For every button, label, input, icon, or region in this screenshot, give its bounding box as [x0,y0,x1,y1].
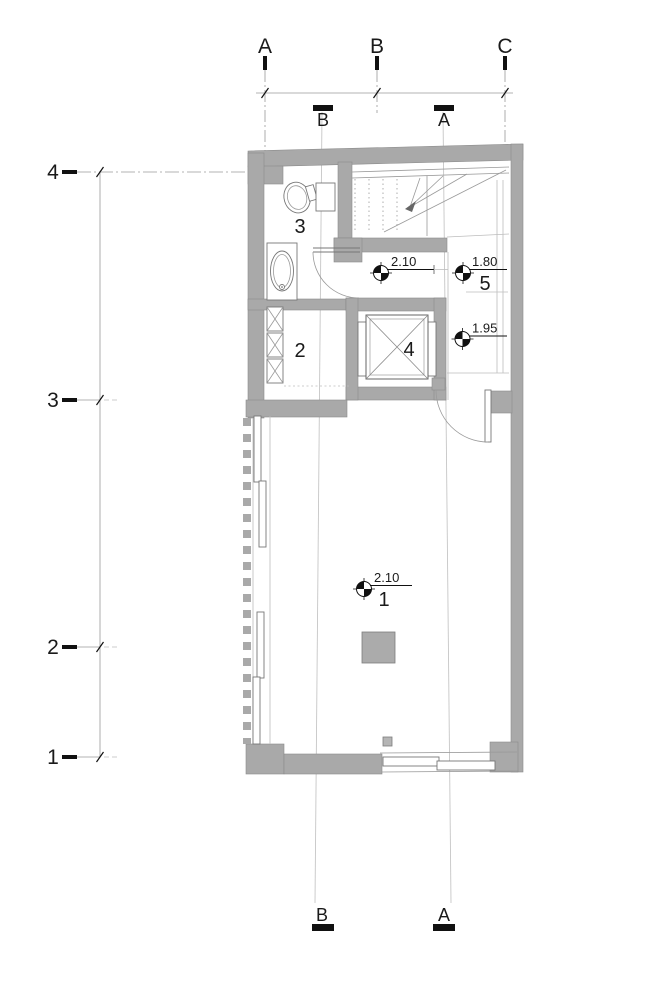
section-label-b-top: B [317,110,329,130]
window-panel-4 [253,677,260,744]
level-marker-room1: 2.10 1 [353,570,412,611]
section-label-b-bottom: B [316,905,328,925]
door-leaf [485,390,491,442]
sliding-door-panel-2 [437,761,495,770]
section-flag-b-bottom [312,924,334,931]
wall-south-band [284,754,382,774]
grid-row-label-4: 4 [47,161,59,184]
elevator-rail-right [428,322,436,376]
grid-column-label-b: B [370,35,384,58]
level-symbol-quadrant-nw [374,266,382,274]
grid-tick-c [503,56,507,70]
walls [246,144,523,774]
window-panel-2 [259,481,266,547]
level-symbol-quadrant-nw [357,582,365,590]
level-symbol-quadrant-nw [456,266,464,274]
wall-west-upper [248,153,264,418]
room2-shaft [267,307,349,386]
section-markers-top: B A [313,105,454,130]
wall-stairs-south-step [334,238,362,262]
level-symbol-quadrant-nw [455,332,463,340]
room-label-1: 1 [378,589,389,611]
elevator [358,315,436,379]
level-symbol-quadrant-se [463,339,471,347]
wall-south-west-block [246,744,284,774]
room-label-4: 4 [403,339,414,361]
grid-row-label-2: 2 [47,636,59,659]
west-window-wall [247,416,270,744]
level-symbol-quadrant-se [381,273,389,281]
east-corridor [447,180,509,400]
grid-column-label-a: A [258,35,272,58]
grid-tick-3 [62,398,77,402]
elevator-rail-left [358,322,366,376]
wall-north [248,144,523,167]
floor-plan-drawing: A B C 4 3 2 1 B [0,0,667,1000]
wall-bathroom-south [248,299,346,310]
room-label-5: 5 [479,273,490,295]
section-markers-bottom: B A [312,905,455,931]
wall-corridor-block [490,391,512,413]
window-panel-3 [257,612,264,678]
sink-drain [281,286,283,288]
section-line-b [315,112,322,903]
elevator-wall-south [346,387,446,400]
grid-tick-2 [62,645,77,649]
level-marker-room5: 1.80 5 [452,254,507,295]
section-label-a-top: A [438,110,450,130]
section-line-a [443,112,451,903]
toilet-cistern [316,183,335,211]
level-value: 1.80 [472,254,497,269]
staircase [352,167,509,236]
level-value: 2.10 [374,570,399,585]
stair-direction-arrow [405,201,416,212]
stair-landing-edge-1 [352,167,509,172]
level-symbol-quadrant-se [463,273,471,281]
level-marker-hall: 2.10 [370,254,448,284]
toilet [280,177,319,216]
column [362,632,395,663]
wall-room2-south [246,400,347,417]
room-label-2: 2 [294,340,305,362]
wall-east [511,144,523,772]
floor-plan-page: A B C 4 3 2 1 B [0,0,667,1000]
grid-tick-b [375,56,379,70]
grid-rows: 4 3 2 1 [47,161,248,769]
floor-box [383,737,392,746]
wall-bathroom-stairs [338,162,352,250]
grid-columns: A B C [256,35,513,152]
level-value: 2.10 [391,254,416,269]
elevator-wall-north [346,298,446,311]
stair-winder-4 [410,174,467,207]
grid-row-label-1: 1 [47,746,59,769]
section-cut-lines [315,112,451,903]
level-symbol-quadrant-se [364,589,372,597]
corridor-line-top [447,234,509,237]
stair-landing-edge-2 [352,173,509,178]
level-marker-corridor: 1.95 [452,321,508,351]
stair-winder-1 [384,170,506,232]
grid-row-label-3: 3 [47,389,59,412]
section-label-a-bottom: A [438,905,450,925]
grid-column-label-c: C [497,35,512,58]
wall-door-stub [432,378,445,390]
room-label-3: 3 [294,216,305,238]
grid-tick-1 [62,755,77,759]
section-flag-a-bottom [433,924,455,931]
level-value: 1.95 [472,321,497,336]
grid-tick-a [263,56,267,70]
sliding-door-panel-1 [383,757,439,766]
elevator-wall-west [346,298,358,400]
grid-tick-4 [62,170,77,174]
window-panel-1 [254,416,261,482]
